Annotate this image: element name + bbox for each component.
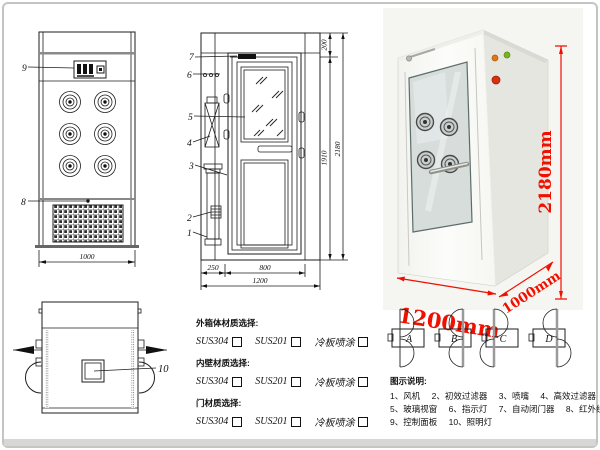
svg-text:C: C bbox=[500, 334, 507, 345]
material-option-label: 冷板喷涂 bbox=[314, 374, 354, 389]
door-option-a: A bbox=[386, 303, 430, 373]
glass-door-window bbox=[409, 62, 472, 232]
door-option-d: D bbox=[527, 303, 571, 373]
svg-text:4: 4 bbox=[187, 139, 192, 149]
svg-text:1000: 1000 bbox=[80, 252, 95, 261]
width-dimensions: 250 800 1200 bbox=[201, 260, 320, 290]
legend-item: 1、风机 bbox=[390, 391, 420, 401]
legend-item: 2、初效过滤器 bbox=[432, 391, 488, 401]
door-swing-options: A B C D bbox=[386, 303, 571, 373]
front-view-drawing: 9 8 1000 bbox=[18, 24, 180, 272]
material-checkbox[interactable] bbox=[291, 377, 301, 387]
material-option-label: SUS201 bbox=[255, 336, 287, 347]
svg-text:3: 3 bbox=[188, 162, 194, 172]
material-option-label: 冷板喷涂 bbox=[314, 334, 354, 349]
door-option-c: C bbox=[480, 303, 524, 373]
svg-text:2180: 2180 bbox=[333, 141, 342, 156]
air-shower-cabinet bbox=[398, 30, 548, 286]
material-option-label: SUS304 bbox=[196, 416, 228, 427]
svg-text:800: 800 bbox=[259, 263, 271, 272]
svg-text:1: 1 bbox=[187, 229, 192, 239]
svg-text:2180mm: 2180mm bbox=[536, 130, 556, 213]
material-checkbox[interactable] bbox=[358, 337, 368, 347]
top-view-body bbox=[39, 302, 141, 413]
legend-title: 图示说明: bbox=[390, 375, 590, 387]
material-option-label: SUS201 bbox=[255, 376, 287, 387]
legend-item: 9、控制面板 bbox=[390, 417, 437, 427]
legend-row: 5、玻璃视窗 6、指示灯 7、自动闭门器 8、红外线感应器 bbox=[390, 403, 590, 416]
door-closer bbox=[238, 54, 256, 59]
material-checkbox[interactable] bbox=[291, 417, 301, 427]
svg-text:10: 10 bbox=[158, 364, 169, 375]
callout-9: 9 bbox=[22, 64, 74, 74]
side-view-drawing: 7 6 5 4 3 2 1 200 1910 2180 bbox=[180, 24, 355, 296]
svg-text:B: B bbox=[451, 334, 457, 345]
material-group-title: 外箱体材质选择: bbox=[196, 317, 380, 329]
svg-text:6: 6 bbox=[187, 71, 192, 81]
svg-text:A: A bbox=[405, 334, 413, 345]
legend-item: 6、指示灯 bbox=[449, 404, 488, 414]
legend-item: 10、照明灯 bbox=[449, 417, 492, 427]
product-photo: 2180mm 1200mm 1000mm bbox=[383, 10, 583, 310]
material-checkbox[interactable] bbox=[232, 377, 242, 387]
control-panel bbox=[74, 61, 106, 78]
material-option-label: SUS201 bbox=[255, 416, 287, 427]
glass-hatch-marks bbox=[252, 77, 283, 136]
material-group-title: 门材质选择: bbox=[196, 397, 380, 409]
legend-item: 8、红外线感应器 bbox=[566, 404, 600, 414]
svg-text:D: D bbox=[544, 334, 553, 345]
material-checkbox[interactable] bbox=[291, 337, 301, 347]
legend-row: 9、控制面板 10、照明灯 bbox=[390, 416, 590, 429]
fan-unit bbox=[205, 97, 219, 147]
legend-row: 1、风机 2、初效过滤器 3、喷嘴 4、高效过滤器 bbox=[390, 390, 590, 403]
svg-text:7: 7 bbox=[189, 53, 195, 63]
air-shower-spec-sheet: 9 8 1000 bbox=[0, 0, 600, 450]
top-view-drawing: 10 bbox=[8, 296, 198, 448]
svg-text:1200: 1200 bbox=[253, 276, 268, 285]
svg-text:200: 200 bbox=[320, 39, 329, 51]
door-handle-slot bbox=[258, 146, 292, 152]
legend-item: 4、高效过滤器 bbox=[540, 391, 596, 401]
material-checkbox[interactable] bbox=[232, 417, 242, 427]
left-door-swing bbox=[13, 340, 42, 393]
svg-text:9: 9 bbox=[22, 64, 27, 74]
front-width-dimension: 1000 bbox=[39, 250, 135, 267]
svg-text:1910: 1910 bbox=[320, 150, 329, 165]
nozzles-front bbox=[60, 92, 116, 177]
material-option-label: SUS304 bbox=[196, 376, 228, 387]
legend-item: 5、玻璃视窗 bbox=[390, 404, 437, 414]
legend-item: 3、喷嘴 bbox=[499, 391, 529, 401]
material-group-title: 内壁材质选择: bbox=[196, 357, 380, 369]
material-checkbox[interactable] bbox=[358, 417, 368, 427]
svg-text:5: 5 bbox=[188, 113, 193, 123]
height-dimensions: 200 1910 2180 bbox=[320, 33, 349, 260]
bottom-strip bbox=[4, 439, 596, 446]
material-checkbox[interactable] bbox=[232, 337, 242, 347]
legend-item: 7、自动闭门器 bbox=[499, 404, 555, 414]
svg-text:250: 250 bbox=[207, 263, 219, 272]
side-callouts: 7 6 5 4 3 2 1 bbox=[187, 53, 245, 239]
material-selection: 外箱体材质选择: SUS304 SUS201 冷板喷涂 内壁材质选择: SUS3… bbox=[196, 317, 380, 437]
svg-text:8: 8 bbox=[21, 198, 26, 208]
legend: 图示说明: 1、风机 2、初效过滤器 3、喷嘴 4、高效过滤器 5、玻璃视窗 6… bbox=[390, 375, 590, 429]
door-with-glass bbox=[224, 53, 304, 254]
return-air-grille bbox=[53, 205, 123, 242]
svg-text:2: 2 bbox=[187, 214, 192, 224]
door-option-b: B bbox=[433, 303, 477, 373]
material-option-label: SUS304 bbox=[196, 336, 228, 347]
material-checkbox[interactable] bbox=[358, 377, 368, 387]
material-option-label: 冷板喷涂 bbox=[314, 414, 354, 429]
filter-column bbox=[204, 164, 222, 245]
